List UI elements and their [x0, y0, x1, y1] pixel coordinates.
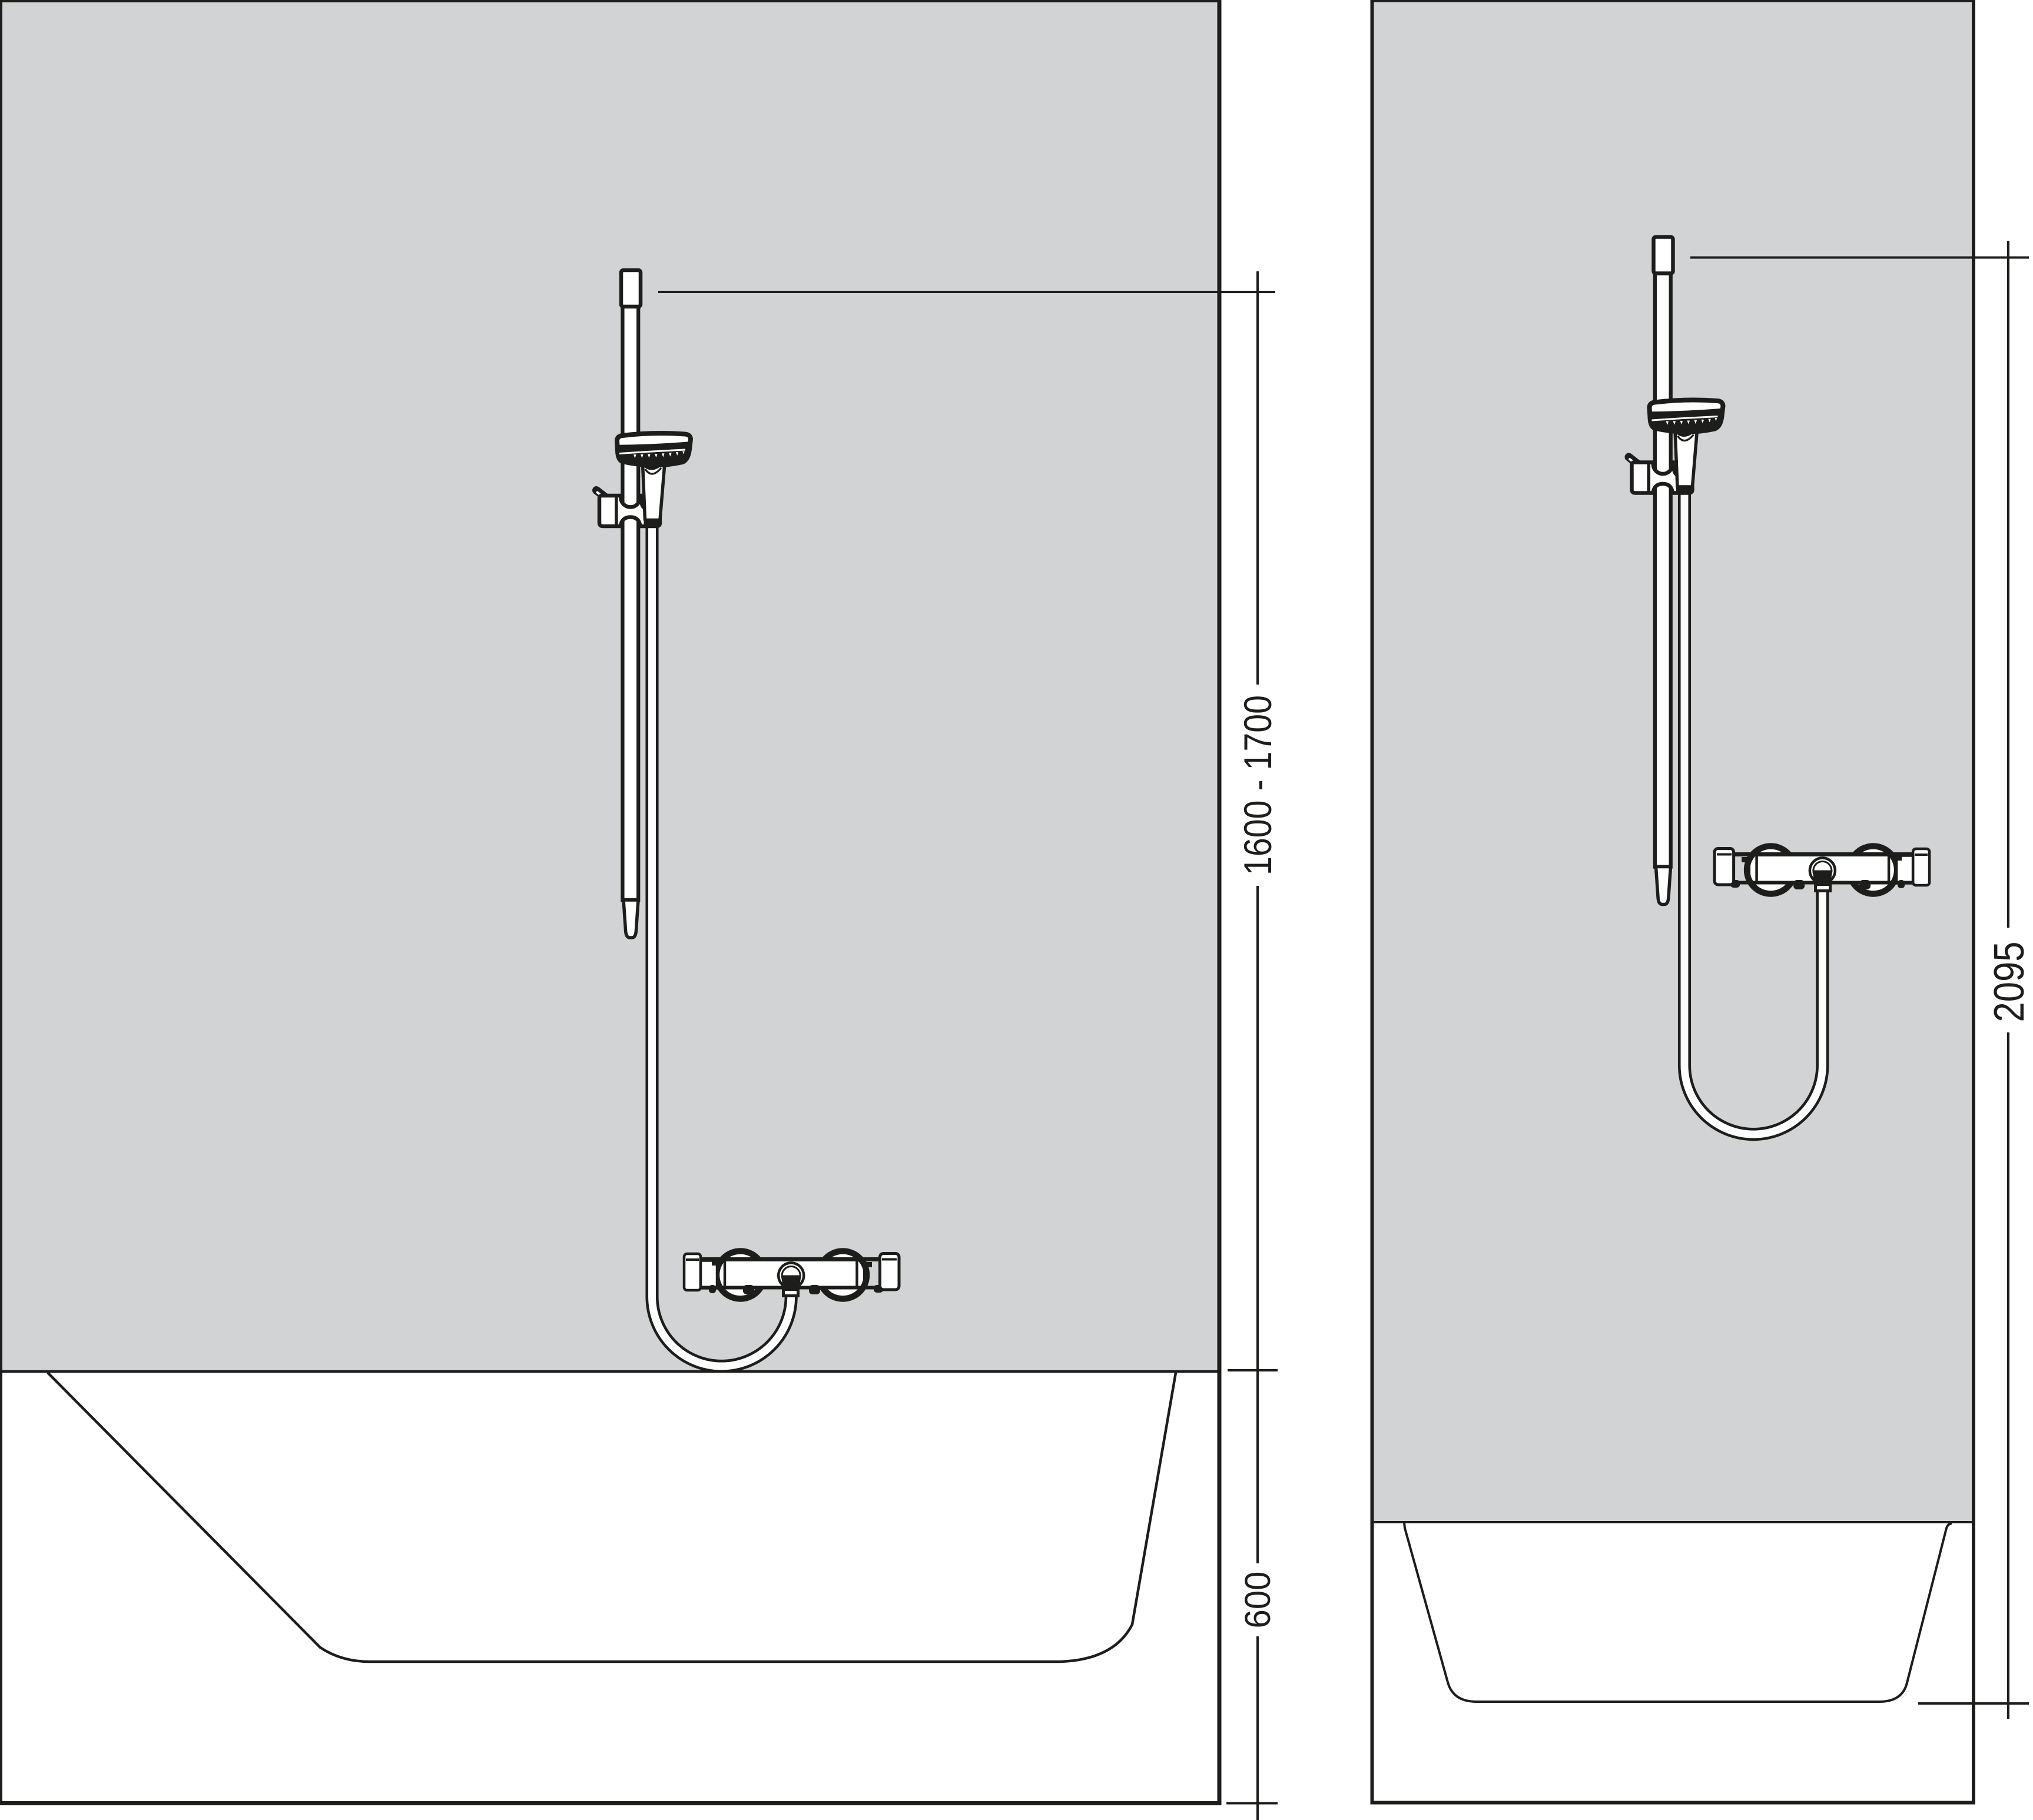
svg-text:1600 - 1700: 1600 - 1700: [1236, 695, 1279, 875]
svg-text:600: 600: [1238, 1572, 1278, 1629]
svg-text:2095: 2095: [1986, 942, 2033, 1022]
